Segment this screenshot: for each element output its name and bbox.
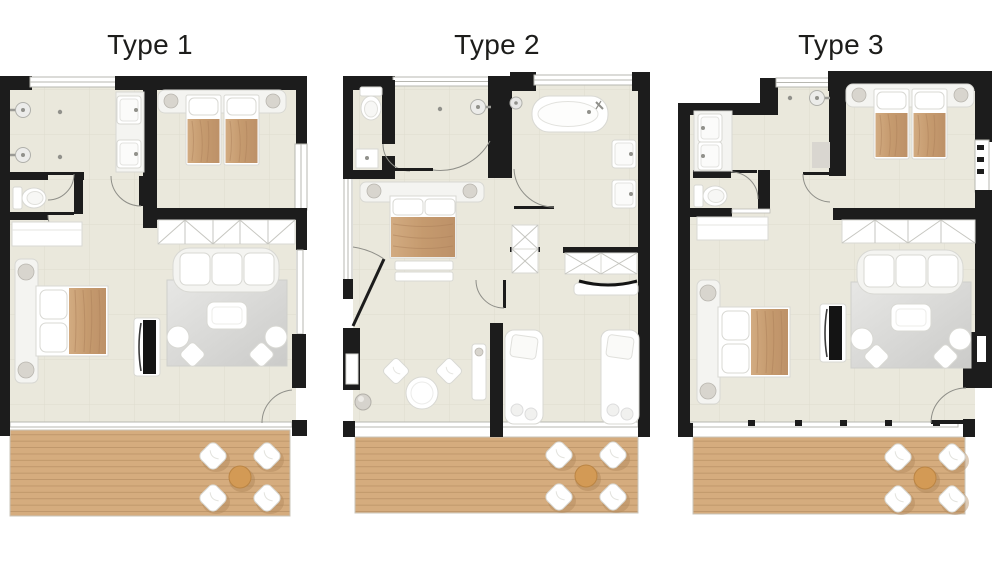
floor-drain <box>58 155 62 159</box>
sink-icon <box>117 96 141 124</box>
sink-icon <box>612 140 636 168</box>
lounge-set-type-3 <box>851 250 971 370</box>
shower-mat <box>812 142 830 168</box>
decor-vase <box>355 394 371 410</box>
toilet-icon <box>360 87 382 120</box>
unit-plan-type-3 <box>678 71 992 515</box>
sliding-door-type-1 <box>10 422 292 427</box>
unit-plan-type-2 <box>343 72 650 513</box>
wardrobe <box>158 220 295 244</box>
unit-plan-type-1 <box>0 76 307 516</box>
floorplan-svg <box>0 0 1000 563</box>
daybed-lounger <box>601 330 639 424</box>
wardrobe <box>842 220 975 243</box>
cabinet <box>697 217 768 240</box>
daybed-lounger <box>505 330 543 424</box>
entry-shelf <box>346 354 358 384</box>
toilet-icon <box>13 187 46 209</box>
tv-unit-type-2 <box>574 281 638 295</box>
sliding-door-type-3 <box>690 422 958 427</box>
tv-unit-type-3 <box>820 304 846 362</box>
sink-icon <box>117 140 141 168</box>
floorplan-sheet: Type 1 Type 2 Type 3 <box>0 0 1000 563</box>
toilet-icon <box>694 185 727 207</box>
lounge-set-type-1 <box>167 248 287 368</box>
floor-drain <box>438 107 442 111</box>
cabinet <box>12 222 82 246</box>
bathtub-icon <box>532 96 608 132</box>
floor-drain <box>788 96 792 100</box>
tv-unit-type-1 <box>134 318 160 376</box>
sink-icon <box>698 142 722 170</box>
sink-icon <box>698 114 722 142</box>
floor-drain <box>58 110 62 114</box>
sink-icon <box>612 180 636 208</box>
